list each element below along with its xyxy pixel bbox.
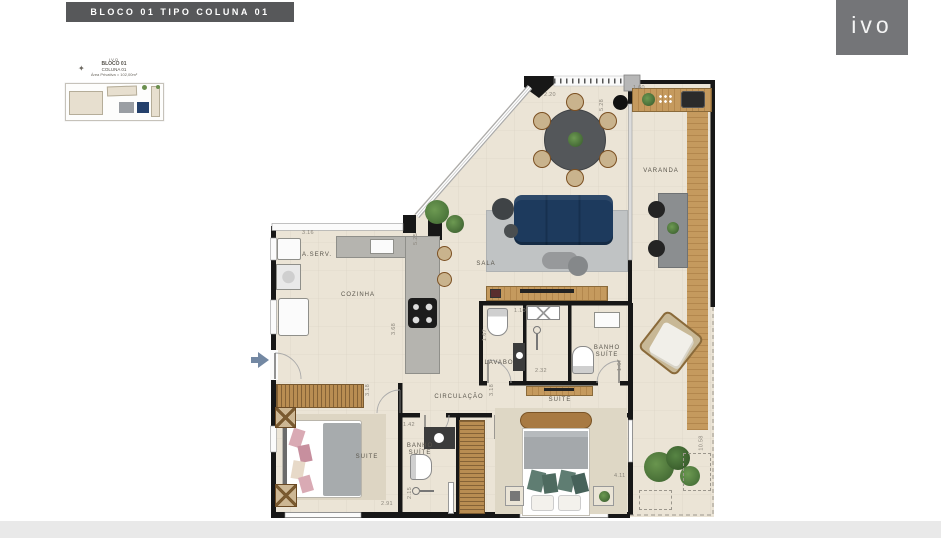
dimension-label: 1.42 — [403, 422, 415, 428]
plant — [446, 215, 464, 233]
wardrobe-suite2 — [459, 420, 485, 514]
lavabo-toilet — [487, 308, 508, 336]
shower-arm — [536, 334, 538, 350]
label-circulacao: CIRCULAÇÃO — [419, 394, 499, 401]
varanda-table-plant — [667, 222, 679, 234]
console-decor — [490, 289, 501, 298]
thumbnail-room-right — [151, 86, 160, 117]
stool — [437, 246, 452, 261]
dimension-label: 10.58 — [699, 435, 705, 450]
varanda-chair — [648, 201, 665, 218]
washer — [276, 264, 301, 290]
label-banho-suite-left: BANHO SUÍTE — [402, 443, 438, 457]
thumbnail-room-top — [107, 85, 137, 96]
planter-outline — [639, 490, 672, 510]
plan-thumbnail[interactable]: ✦ IVO BLOCO 01 COLUNA 01 Área Privativa … — [64, 57, 164, 120]
deck — [687, 112, 708, 430]
dimension-label: 3.68 — [391, 323, 397, 335]
thumbnail-tree — [142, 85, 147, 90]
thumbnail-siteplan — [65, 83, 164, 121]
dining-plant — [568, 132, 583, 147]
fridge — [278, 298, 309, 336]
tv — [520, 289, 574, 293]
pouf-small — [504, 224, 518, 238]
suite2-tv — [544, 388, 574, 391]
banho2-door-panel — [448, 482, 454, 514]
label-aserv: A.SERV. — [287, 252, 347, 259]
suite1-nightstand — [275, 484, 297, 507]
counter-plant — [642, 93, 655, 106]
banho-suite-sink — [594, 312, 620, 328]
dining-chair — [533, 112, 551, 130]
brand-logo: ivo — [836, 0, 908, 55]
counter-burners — [658, 94, 672, 105]
wardrobe-suite1 — [276, 384, 364, 408]
grill — [681, 91, 705, 108]
dining-chair — [599, 112, 617, 130]
cooktop — [408, 298, 437, 328]
dimension-label: 5.28 — [599, 99, 605, 111]
thumbnail-tree — [156, 85, 160, 89]
suite2-nightstand — [505, 486, 524, 506]
dining-chair — [533, 150, 551, 168]
label-lavabo: LAVABO — [469, 360, 529, 367]
suite2-bed — [522, 428, 590, 516]
dimension-label: 4.11 — [614, 473, 626, 479]
pouf-large — [492, 198, 514, 220]
label-suite-master: SUÍTE — [540, 397, 580, 404]
planter-outline — [683, 453, 711, 491]
dimension-label: 3.16 — [302, 230, 314, 236]
dimension-label: 1.67 — [482, 329, 488, 341]
label-cozinha: COZINHA — [328, 292, 388, 299]
thumbnail-room-left — [69, 91, 103, 115]
stool — [437, 272, 452, 287]
varanda-chair — [648, 240, 665, 257]
bottom-strip — [0, 521, 941, 538]
shower-box — [527, 306, 560, 320]
dimension-label: 1.67 — [617, 359, 623, 371]
kitchen-sink — [370, 239, 394, 254]
suite2-nightstand — [593, 486, 614, 506]
dimension-label: 5.25 — [413, 233, 419, 245]
dimension-label: 3.18 — [365, 384, 371, 396]
thumbnail-unit-other — [119, 102, 134, 113]
dimension-label: 2.20 — [544, 92, 556, 98]
dimension-label: 2.15 — [407, 487, 413, 499]
dining-chair — [566, 169, 584, 187]
banho2-toilet — [410, 454, 432, 480]
floor-vase — [613, 95, 628, 110]
floor-plan: VARANDA SALA COZINHA A.SERV. LAVABO BANH… — [262, 74, 718, 526]
dimension-label: 1.60 — [633, 85, 645, 91]
thumbnail-area: Área Privativa = 102,00m² — [64, 72, 164, 77]
banho2-shower-arm — [420, 490, 434, 492]
shower-head — [533, 326, 541, 334]
page-title: BLOCO 01 TIPO COLUNA 01 — [66, 2, 294, 22]
thumbnail-caption: IVO BLOCO 01 COLUNA 01 Área Privativa = … — [64, 57, 164, 77]
dimension-label: 3.18 — [489, 384, 495, 396]
label-varanda: VARANDA — [633, 168, 689, 175]
sofa — [514, 195, 613, 245]
dimension-label: 2.91 — [381, 501, 393, 507]
label-banho-suite-right: BANHO SUÍTE — [587, 345, 627, 359]
dimension-label: 2.32 — [535, 368, 547, 374]
label-sala: SALA — [466, 261, 506, 268]
dimension-label: 1.10 — [514, 308, 526, 314]
thumbnail-unit-highlight — [137, 102, 149, 113]
label-suite-left: SUITE — [347, 454, 387, 461]
dining-chair — [599, 150, 617, 168]
banho2-shower-head — [412, 487, 420, 495]
dining-chair — [566, 93, 584, 111]
coffee-table-round — [568, 256, 588, 276]
suite1-nightstand — [275, 407, 296, 428]
suite2-headboard — [520, 412, 592, 429]
